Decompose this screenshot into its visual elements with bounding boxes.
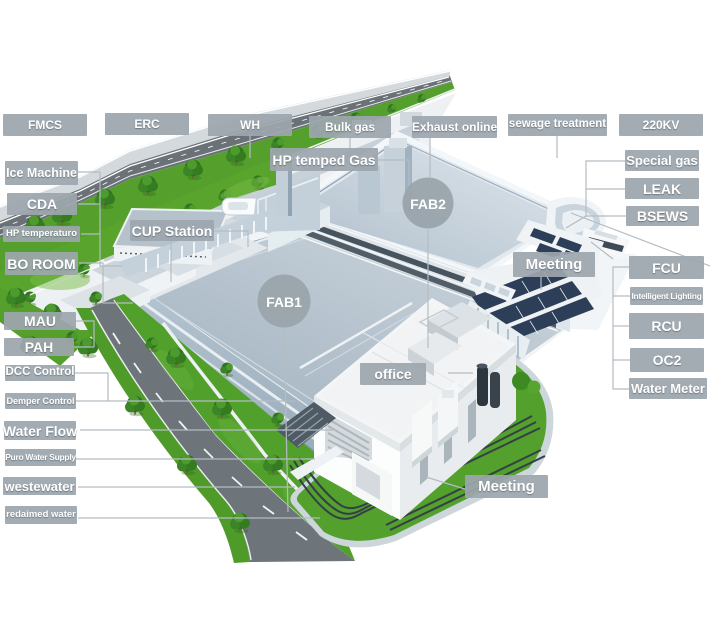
svg-text:FAB1: FAB1 xyxy=(266,294,302,310)
svg-text:FAB2: FAB2 xyxy=(410,196,446,212)
